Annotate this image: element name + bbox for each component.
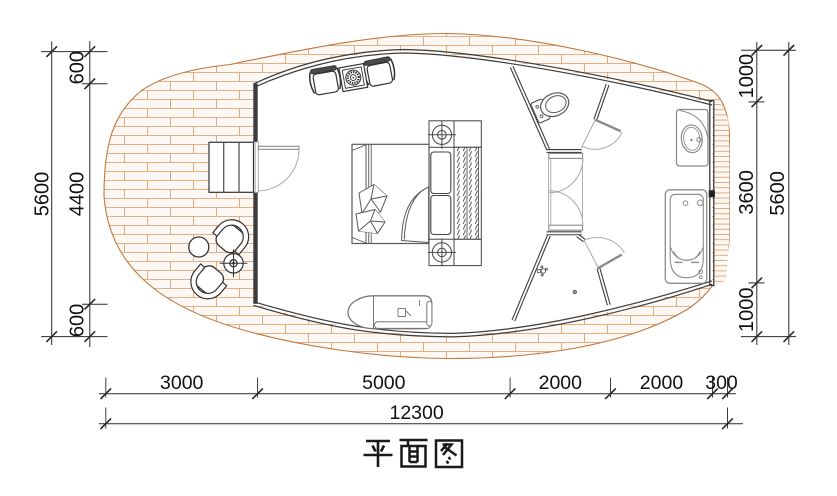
svg-text:2000: 2000 bbox=[640, 372, 684, 394]
svg-text:600: 600 bbox=[67, 51, 89, 84]
svg-text:3000: 3000 bbox=[160, 372, 204, 394]
svg-text:4400: 4400 bbox=[67, 172, 89, 217]
svg-text:1000: 1000 bbox=[736, 54, 758, 99]
svg-text:600: 600 bbox=[67, 304, 89, 337]
svg-text:5000: 5000 bbox=[362, 372, 406, 394]
svg-text:3600: 3600 bbox=[736, 170, 758, 215]
svg-text:5600: 5600 bbox=[31, 172, 53, 217]
svg-text:2000: 2000 bbox=[539, 372, 583, 394]
svg-text:300: 300 bbox=[705, 372, 738, 394]
svg-text:12300: 12300 bbox=[389, 402, 443, 424]
svg-text:1000: 1000 bbox=[736, 287, 758, 332]
svg-text:5600: 5600 bbox=[767, 171, 789, 216]
